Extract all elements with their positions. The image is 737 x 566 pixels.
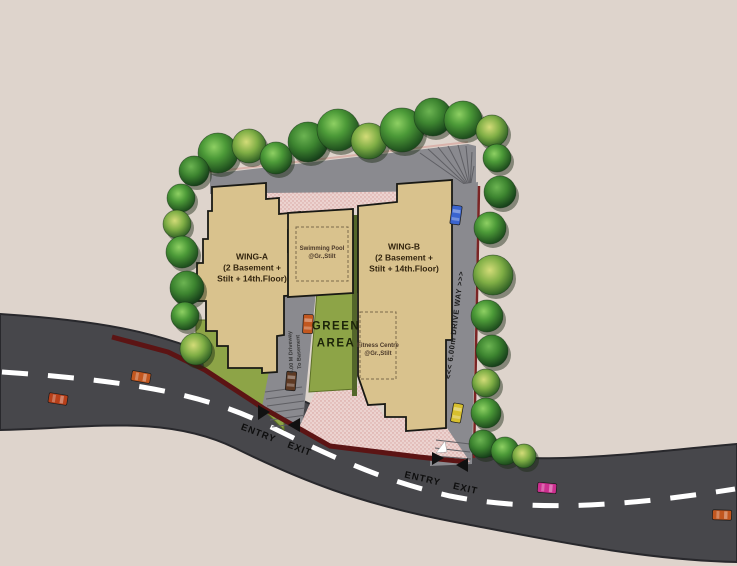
car-blue-driveway <box>450 205 463 225</box>
site-plan: WING-A (2 Basement + Stilt + 14th.Floor)… <box>0 0 737 566</box>
hedge-strip-1 <box>352 288 357 396</box>
green-area <box>309 288 356 392</box>
site-plan-drawing <box>0 0 737 566</box>
pool-terrace-building <box>288 209 353 297</box>
car-orange-basement-ramp <box>303 314 314 333</box>
car-orange-road-2 <box>712 510 731 521</box>
car-magenta-road <box>537 482 557 494</box>
car-brown-basement-ramp <box>285 371 297 391</box>
wing-b-building <box>358 180 452 431</box>
